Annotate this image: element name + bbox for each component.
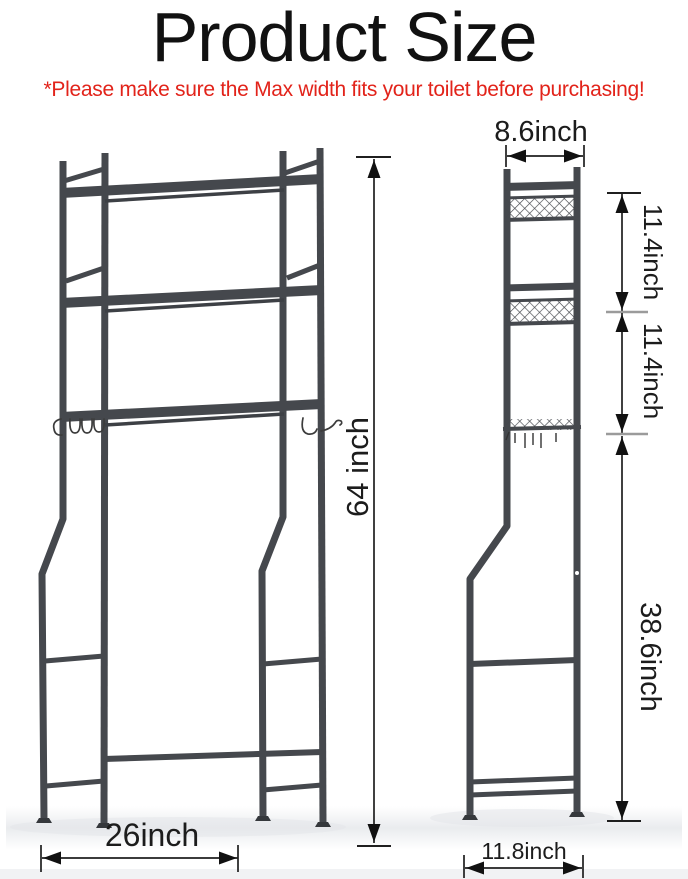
- tier2-gap-dimension: 11.4inch: [606, 312, 668, 434]
- side-rack-drawing: [462, 167, 585, 820]
- product-size-infographic: Product Size *Please make sure the Max w…: [0, 0, 688, 879]
- diagram-svg: 64 inch 26inch 8.6inch 11.4inch: [0, 0, 688, 879]
- header: Product Size *Please make sure the Max w…: [0, 0, 688, 101]
- lower-height-dimension: 38.6inch: [607, 436, 666, 821]
- page-title: Product Size: [0, 0, 688, 73]
- height-dimension-label: 64 inch: [340, 417, 375, 517]
- tier2-gap-label: 11.4inch: [638, 323, 668, 419]
- height-dimension: 64 inch: [340, 157, 391, 846]
- warning-note: *Please make sure the Max width fits you…: [0, 78, 688, 101]
- base-depth-label: 11.8inch: [481, 838, 566, 864]
- width-dimension-label: 26inch: [105, 817, 199, 853]
- top-width-dimension-label: 8.6inch: [494, 116, 588, 148]
- front-rack-drawing: [36, 148, 331, 828]
- tier1-gap-label: 11.4inch: [638, 204, 668, 300]
- tier1-gap-dimension: 11.4inch: [607, 193, 668, 311]
- top-width-dimension: 8.6inch: [494, 116, 588, 167]
- side-hooks: [506, 432, 556, 448]
- lower-height-label: 38.6inch: [634, 602, 666, 712]
